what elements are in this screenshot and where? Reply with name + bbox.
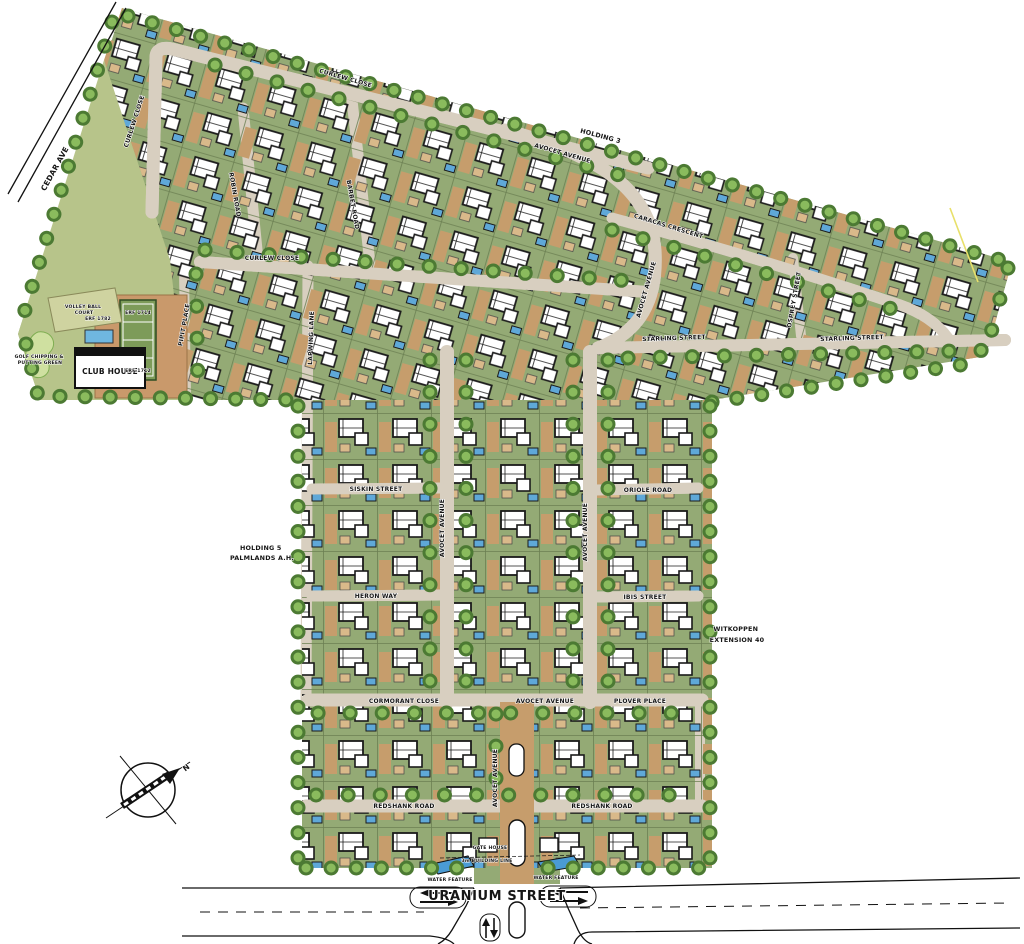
area-label-witkoppen: WITKOPPEN EXTENSION 40 bbox=[710, 625, 765, 644]
volleyball-line1: VOLLEY BALL bbox=[65, 304, 101, 310]
street-label-avocet-boulevard: AVOCET AVENUE bbox=[492, 749, 499, 807]
street-label-cormorant-close: CORMORANT CLOSE bbox=[369, 698, 439, 705]
witkoppen-line1: WITKOPPEN bbox=[713, 625, 758, 633]
street-label-avocet-west: AVOCET AVENUE bbox=[439, 499, 446, 557]
holding-5-line2: PALMLANDS A.H. bbox=[230, 554, 294, 562]
area-label-holding-5: HOLDING 5 PALMLANDS A.H. bbox=[230, 544, 294, 562]
street-label-redshank-road-1: REDSHANK ROAD bbox=[373, 803, 434, 810]
volleyball-line2: COURT bbox=[75, 310, 94, 316]
gate-house-east bbox=[540, 838, 558, 852]
street-label-siskin-street: SISKIN STREET bbox=[350, 486, 403, 493]
street-label-plover-place: PLOVER PLACE bbox=[614, 698, 666, 705]
street-label-curlew-close-mid: CURLEW CLOSE bbox=[245, 255, 299, 262]
street-label-oriole-road: ORIOLE ROAD bbox=[624, 487, 672, 494]
label-water-feature-west: WATER FEATURE bbox=[427, 877, 472, 883]
label-erf-a: ERF 1782 bbox=[85, 316, 111, 322]
golf-line1: GOLF CHIPPING & bbox=[15, 354, 64, 360]
site-plan-page: N CEDAR AVE CURLEW CLOSE CURLEW CLOSE RO… bbox=[0, 0, 1024, 944]
street-label-heron-way: HERON WAY bbox=[355, 593, 398, 600]
street-label-avocet-east: AVOCET AVENUE bbox=[582, 503, 589, 561]
compass-north-label: N bbox=[181, 762, 192, 773]
label-erf-b: ERF 1714 bbox=[125, 310, 151, 316]
compass-rose: N bbox=[106, 756, 192, 824]
label-water-feature-east: WATER FEATURE bbox=[533, 875, 578, 881]
street-label-ibis-street: IBIS STREET bbox=[624, 594, 668, 601]
uranium-street-area bbox=[182, 878, 1020, 944]
swimming-pool bbox=[85, 330, 113, 343]
clubhouse-roof bbox=[75, 348, 145, 356]
median-island-upper bbox=[509, 744, 524, 776]
street-label-uranium-street: URANIUM STREET bbox=[428, 889, 566, 904]
street-label-redshank-road-2: REDSHANK ROAD bbox=[571, 803, 632, 810]
label-erf-c: ERF 1712 bbox=[125, 368, 151, 374]
golf-line2: PUTTING GREEN bbox=[18, 360, 62, 366]
site-plan-map: N CEDAR AVE CURLEW CLOSE CURLEW CLOSE RO… bbox=[0, 0, 1024, 944]
witkoppen-line2: EXTENSION 40 bbox=[710, 636, 765, 644]
street-label-avocet-mid: AVOCET AVENUE bbox=[516, 698, 574, 705]
holding-5-line1: HOLDING 5 bbox=[240, 544, 282, 552]
label-gate-house: GATE HOUSE bbox=[473, 845, 508, 851]
median-island-junction bbox=[509, 902, 525, 938]
label-building-line: 3m BUILDING LINE bbox=[461, 858, 512, 864]
